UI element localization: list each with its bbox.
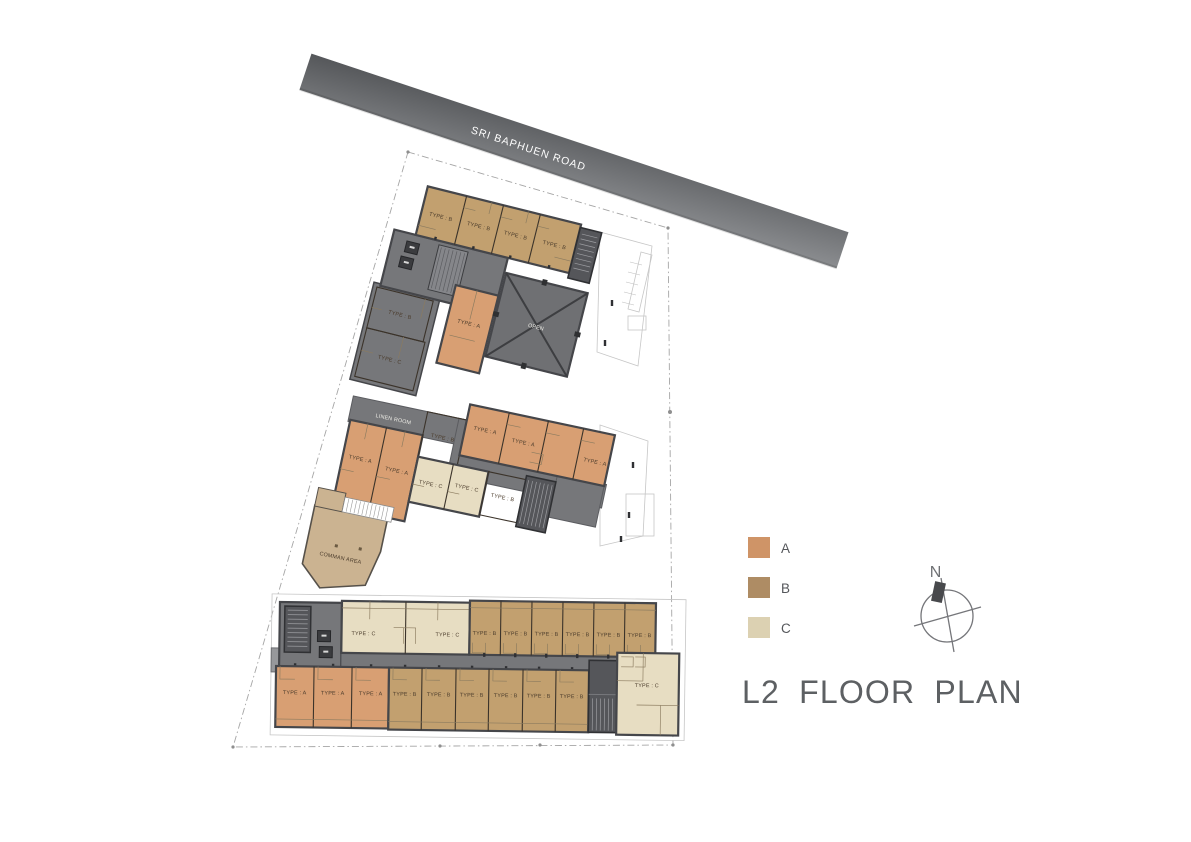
plan-title: L2 FLOOR PLAN [742, 674, 1023, 710]
south-bottom-type-b: TYPE : B TYPE : B TYPE : B TYPE : B TYPE… [388, 668, 589, 733]
north-compass: N [914, 564, 981, 652]
room-label-type-c: TYPE : C [635, 683, 659, 689]
legend-label-c: C [781, 621, 791, 636]
boundary-marker [668, 410, 672, 414]
room-label-type-b: TYPE : B [460, 693, 484, 699]
boundary-marker [538, 743, 541, 746]
room-label-type-b: TYPE : B [566, 632, 590, 638]
south-top-type-c: TYPE : C TYPE : C [341, 601, 470, 655]
legend-swatch-a [748, 537, 770, 558]
room-label-type-a: TYPE : A [359, 691, 383, 697]
compass-needle [931, 581, 946, 603]
elevator-mark [323, 651, 328, 653]
floor-plan-canvas: SRI BAPHUEN ROAD TYPE : B TYPE : B TYPE … [0, 0, 1191, 842]
building-south: TYPE : C TYPE : C TYPE : B TYPE : B TYPE… [270, 594, 686, 741]
legend-swatch-c [748, 617, 770, 638]
boundary-marker [666, 226, 669, 229]
room-label-type-b: TYPE : B [494, 693, 518, 699]
room-label-type-a: TYPE : A [321, 691, 345, 697]
room-label-type-b: TYPE : B [527, 693, 551, 699]
room-label-type-b: TYPE : B [393, 692, 417, 698]
column [335, 544, 339, 548]
boundary-marker [231, 745, 234, 748]
room-label-type-b: TYPE : B [535, 632, 559, 638]
south-endcap-type-c: TYPE : C [616, 653, 679, 736]
room-label-type-b: TYPE : B [504, 631, 528, 637]
boundary-marker [438, 744, 441, 747]
room-label-type-b: TYPE : B [560, 694, 584, 700]
room-label-type-b: TYPE : B [597, 632, 621, 638]
legend: A B C [748, 537, 791, 638]
column [358, 547, 362, 551]
boundary-marker [406, 150, 409, 153]
room-label-type-b: TYPE : B [628, 633, 652, 639]
room-label-type-b: TYPE : B [427, 692, 451, 698]
legend-swatch-b [748, 577, 770, 598]
ramp-hatch [622, 262, 642, 305]
compass-north-label: N [930, 564, 943, 581]
legend-label-a: A [781, 541, 790, 556]
legend-label-b: B [781, 581, 790, 596]
building-north: TYPE : B TYPE : B TYPE : B TYPE : B TYPE… [350, 179, 607, 430]
room-label-type-c: TYPE : C [435, 632, 459, 638]
court-ticks [605, 300, 633, 542]
elevator-mark [321, 635, 326, 637]
south-right-stair [588, 660, 619, 732]
ramp-outline [628, 252, 652, 312]
room-label-type-c: TYPE : C [351, 631, 375, 637]
site-courts [597, 232, 654, 546]
room-label-type-b: TYPE : B [490, 493, 515, 504]
compass-cross-line [914, 607, 981, 626]
room-label-type-a: TYPE : A [283, 690, 307, 696]
boundary-marker [671, 743, 674, 746]
stairwell [284, 606, 311, 652]
room-label-type-b: TYPE : B [473, 631, 497, 637]
south-bottom-type-a: TYPE : A TYPE : A TYPE : A [275, 666, 389, 729]
south-top-type-b: TYPE : B TYPE : B TYPE : B TYPE : B TYPE… [469, 601, 656, 658]
